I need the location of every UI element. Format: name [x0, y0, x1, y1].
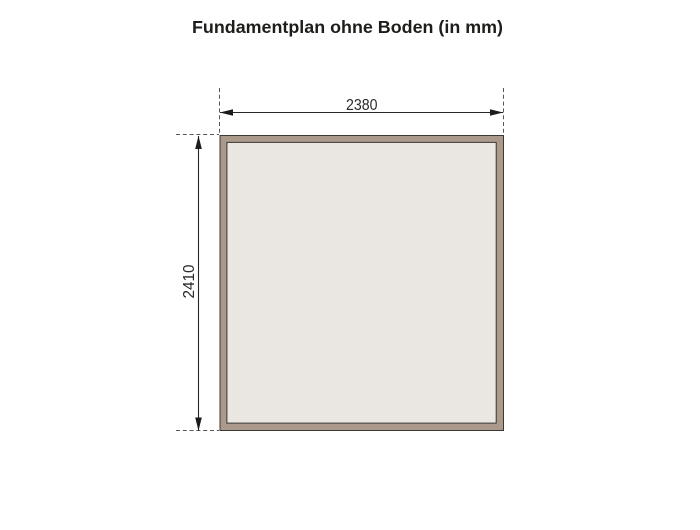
svg-text:2380: 2380 [346, 97, 378, 114]
svg-text:2410: 2410 [181, 264, 198, 298]
svg-text:Fundamentplan ohne Boden (in m: Fundamentplan ohne Boden (in mm) [192, 17, 503, 37]
